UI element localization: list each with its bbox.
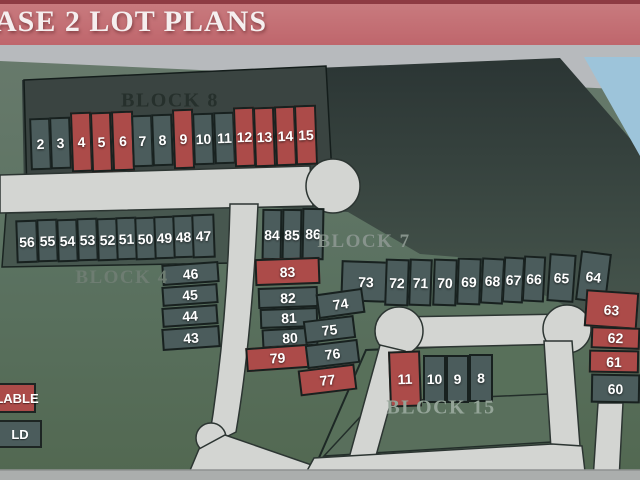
lot-86[interactable]: 86 — [302, 208, 325, 260]
legend-available-label: LABLE — [0, 391, 39, 406]
lot-71[interactable]: 71 — [408, 259, 433, 307]
lot-63[interactable]: 63 — [584, 289, 639, 330]
lot-55[interactable]: 55 — [36, 219, 58, 263]
lot-44[interactable]: 44 — [161, 304, 218, 328]
lot-11[interactable]: 11 — [388, 350, 422, 407]
lot-70[interactable]: 70 — [432, 259, 458, 307]
lot-72[interactable]: 72 — [384, 259, 410, 307]
road-top — [0, 166, 313, 213]
lot-8[interactable]: 8 — [151, 114, 174, 167]
lot-45[interactable]: 45 — [161, 283, 218, 307]
title-banner: ASE 2 LOT PLANS — [0, 0, 640, 45]
lot-69[interactable]: 69 — [456, 258, 482, 306]
lot-85[interactable]: 85 — [282, 209, 303, 260]
lot-84[interactable]: 84 — [262, 209, 283, 260]
lot-3[interactable]: 3 — [49, 117, 72, 170]
bottom-highway-strip — [0, 470, 640, 480]
lot-56[interactable]: 56 — [15, 220, 38, 264]
lot-66[interactable]: 66 — [522, 255, 546, 302]
road-right-edge — [593, 403, 623, 480]
lot-61[interactable]: 61 — [589, 350, 639, 374]
lot-82[interactable]: 82 — [258, 286, 319, 309]
cul-de-sac-top — [306, 159, 360, 213]
page-title: ASE 2 LOT PLANS — [0, 4, 640, 39]
lot-53[interactable]: 53 — [76, 218, 98, 262]
lot-5[interactable]: 5 — [90, 112, 113, 173]
lot-15[interactable]: 15 — [294, 105, 318, 166]
lot-79[interactable]: 79 — [245, 344, 310, 372]
lot-43[interactable]: 43 — [161, 325, 220, 351]
lot-60[interactable]: 60 — [591, 374, 640, 404]
lot-plan-page: 2345678910111213141556555453525150494847… — [0, 0, 640, 480]
lot-10[interactable]: 10 — [192, 113, 215, 166]
lot-65[interactable]: 65 — [546, 253, 576, 303]
lot-10[interactable]: 10 — [423, 355, 446, 403]
legend-available-box: LABLE — [0, 383, 36, 413]
lot-13[interactable]: 13 — [253, 107, 276, 168]
legend-sold-label: LD — [11, 427, 28, 442]
lot-62[interactable]: 62 — [591, 326, 640, 350]
lot-54[interactable]: 54 — [56, 219, 78, 263]
lot-9[interactable]: 9 — [446, 355, 469, 403]
lot-46[interactable]: 46 — [161, 261, 219, 286]
legend-sold-box: LD — [0, 420, 42, 448]
lot-47[interactable]: 47 — [191, 214, 216, 259]
lot-8[interactable]: 8 — [469, 354, 493, 402]
lot-83[interactable]: 83 — [255, 257, 321, 286]
